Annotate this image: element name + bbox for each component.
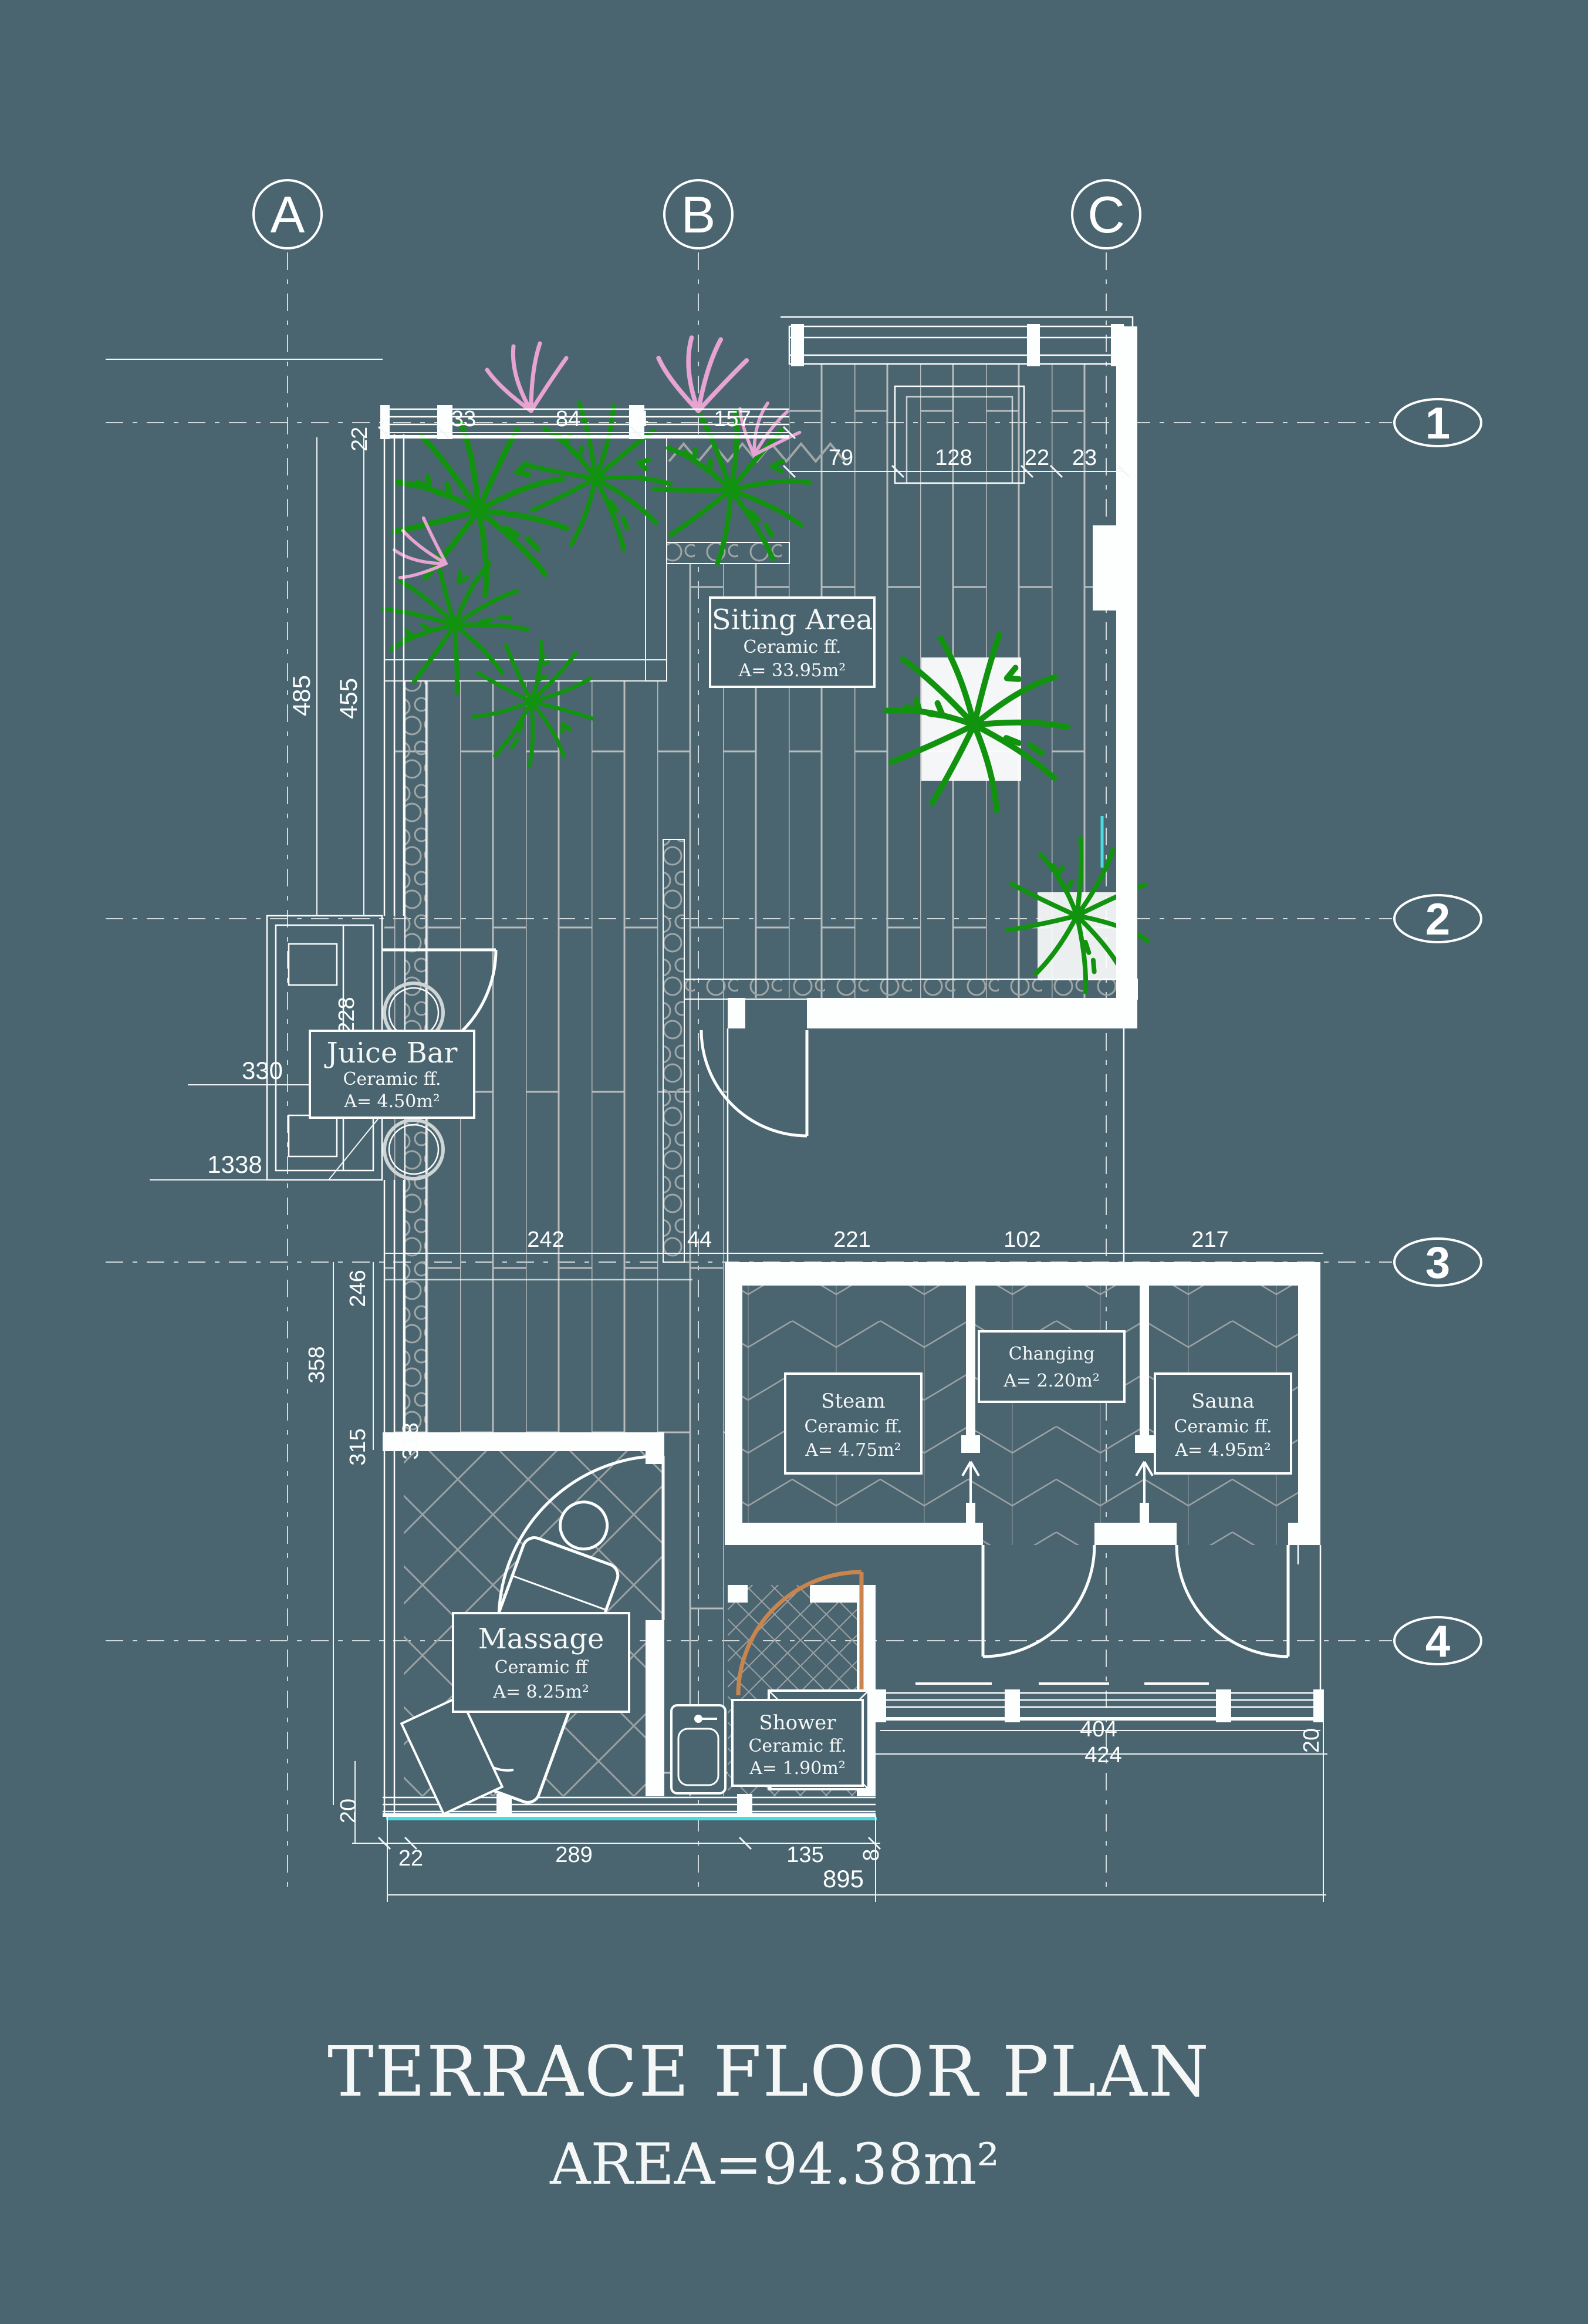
dim-102: 102	[1004, 1227, 1040, 1252]
sink	[671, 1705, 725, 1793]
steam-door-arc	[983, 1545, 1094, 1657]
grid-marker-4: 4	[1394, 1617, 1481, 1667]
svg-text:Ceramic ff.: Ceramic ff.	[748, 1736, 846, 1756]
dim-246: 246	[346, 1270, 370, 1307]
room-juice-bar: Juice Bar Ceramic ff. A= 4.50m²	[310, 1031, 474, 1118]
room-steam: Steam Ceramic ff. A= 4.75m²	[785, 1374, 921, 1473]
svg-text:A= 4.50m²: A= 4.50m²	[343, 1091, 440, 1112]
svg-text:1: 1	[1425, 399, 1450, 448]
svg-text:2: 2	[1425, 895, 1450, 945]
dim-424: 424	[1084, 1743, 1121, 1768]
dim-404: 404	[1080, 1717, 1117, 1742]
svg-text:B: B	[681, 185, 716, 244]
dim-358: 358	[305, 1346, 329, 1383]
dim-289: 289	[555, 1843, 592, 1867]
svg-text:A: A	[271, 185, 305, 244]
dim-79: 79	[829, 446, 853, 470]
dim-315: 315	[346, 1428, 370, 1465]
dim-128: 128	[935, 446, 972, 470]
dim-228: 228	[335, 997, 359, 1034]
drawing-area: AREA=94.38m²	[549, 2131, 999, 2197]
svg-text:Shower: Shower	[759, 1711, 836, 1735]
grid-marker-2: 2	[1394, 895, 1481, 945]
dim-20-left: 20	[336, 1799, 361, 1823]
svg-text:Ceramic ff: Ceramic ff	[495, 1657, 589, 1678]
floor-plan-page: 22 33 84 4 157 79 128 22 23 485 455 330 …	[0, 0, 1588, 2324]
svg-text:Siting Area: Siting Area	[712, 603, 873, 636]
grid-marker-c: C	[1072, 180, 1140, 248]
svg-text:Ceramic ff.: Ceramic ff.	[743, 637, 841, 657]
dim-330: 330	[242, 1057, 283, 1084]
room-massage: Massage Ceramic ff A= 8.25m²	[453, 1613, 629, 1712]
svg-text:Steam: Steam	[821, 1389, 886, 1413]
room-siting-area: Siting Area Ceramic ff. A= 33.95m²	[710, 598, 874, 687]
svg-text:A= 4.75m²: A= 4.75m²	[805, 1440, 901, 1460]
dim-22b: 22	[1025, 446, 1049, 470]
drawing-title: TERRACE FLOOR PLAN	[327, 2031, 1210, 2112]
dim-318: 318	[398, 1422, 423, 1459]
dim-44: 44	[687, 1227, 712, 1252]
dim-221: 221	[833, 1227, 870, 1252]
dim-455: 455	[335, 678, 362, 719]
room-changing: Changing A= 2.20m²	[979, 1331, 1124, 1402]
dim-20-right: 20	[1299, 1728, 1324, 1753]
title-block: TERRACE FLOOR PLAN AREA=94.38m²	[327, 2031, 1210, 2197]
dim-23: 23	[1072, 446, 1097, 470]
svg-text:Juice Bar: Juice Bar	[324, 1037, 458, 1070]
dim-84: 84	[556, 407, 580, 431]
dim-22-bottom: 22	[398, 1846, 423, 1871]
svg-text:A= 1.90m²: A= 1.90m²	[749, 1758, 846, 1779]
dim-4: 4	[636, 407, 648, 431]
svg-text:Changing: Changing	[1009, 1344, 1095, 1364]
svg-text:Ceramic ff.: Ceramic ff.	[804, 1416, 902, 1437]
dim-157: 157	[714, 407, 751, 431]
grid-marker-3: 3	[1394, 1238, 1481, 1288]
sauna-door-arc	[1177, 1545, 1288, 1657]
dim-33: 33	[451, 407, 476, 431]
svg-text:A= 4.95m²: A= 4.95m²	[1174, 1440, 1271, 1460]
svg-text:C: C	[1087, 185, 1125, 244]
svg-text:Massage: Massage	[478, 1623, 604, 1655]
dim-top-22: 22	[347, 427, 372, 451]
room-shower: Shower Ceramic ff. A= 1.90m²	[732, 1700, 863, 1786]
svg-text:3: 3	[1425, 1238, 1450, 1288]
svg-text:Ceramic ff.: Ceramic ff.	[1174, 1416, 1272, 1437]
dim-8: 8	[859, 1849, 884, 1861]
dim-1338: 1338	[207, 1151, 262, 1178]
grid-marker-a: A	[254, 180, 322, 248]
svg-text:A= 33.95m²: A= 33.95m²	[738, 660, 846, 681]
dim-135: 135	[786, 1843, 823, 1867]
dim-485: 485	[288, 675, 315, 716]
dim-895: 895	[823, 1865, 864, 1893]
grid-marker-b: B	[664, 180, 732, 248]
svg-text:Sauna: Sauna	[1191, 1389, 1255, 1413]
grid-marker-1: 1	[1394, 399, 1481, 448]
dim-217: 217	[1191, 1227, 1228, 1252]
svg-text:4: 4	[1425, 1617, 1450, 1667]
room-sauna: Sauna Ceramic ff. A= 4.95m²	[1155, 1374, 1291, 1473]
svg-text:A= 8.25m²: A= 8.25m²	[492, 1682, 589, 1702]
svg-text:A= 2.20m²: A= 2.20m²	[1003, 1371, 1100, 1391]
floor-plan-drawing: 22 33 84 4 157 79 128 22 23 485 455 330 …	[0, 0, 1588, 2324]
dim-242: 242	[527, 1227, 564, 1252]
svg-text:Ceramic ff.: Ceramic ff.	[343, 1069, 441, 1090]
